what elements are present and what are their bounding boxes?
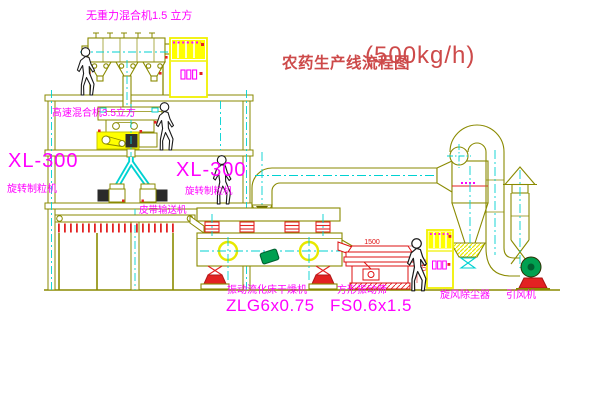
label-granulator-model-left: XL-300 — [8, 151, 79, 171]
spring-mount-right — [309, 266, 337, 289]
induced-draft-fan — [516, 257, 550, 291]
label-dryer-model: ZLG6x0.75 — [226, 297, 315, 314]
granulator-left — [98, 184, 125, 202]
label-screen-name: 方形振动筛 — [337, 286, 387, 296]
process-flow-diagram: 1500 340 — [0, 0, 600, 403]
label-gravity-mixer: 无重力混合机1.5 立方 — [86, 11, 192, 22]
label-cyclone: 旋风除尘器 — [440, 291, 490, 301]
exhaust-stack — [503, 167, 537, 268]
label-fan: 引风机 — [506, 291, 536, 301]
label-granulator-model-right: XL-300 — [176, 160, 247, 180]
diagram-capacity: (500kg/h) — [365, 42, 475, 70]
screen-length-dimension: 1500 — [364, 239, 380, 246]
exhaust-duct — [252, 152, 460, 215]
flex-connectors — [205, 222, 330, 232]
label-granulator-name-left: 旋转制粒机 — [7, 185, 57, 195]
control-cabinet-roof — [170, 38, 207, 97]
fluid-bed-dryer — [197, 208, 354, 289]
y-chute — [117, 157, 148, 186]
control-cabinet-ground — [427, 230, 453, 288]
label-granulator-name-right: 旋转制粒机 — [185, 187, 233, 197]
belt-conveyor — [55, 215, 204, 233]
granulator-right — [140, 184, 167, 202]
label-screen-model: FS0.6x1.5 — [330, 297, 412, 314]
label-high-speed-mixer: 高速混合机3.5立方 — [52, 109, 136, 119]
label-belt-conveyor: 皮带输送机 — [139, 206, 187, 216]
label-dryer-name: 振动流化床干燥机 — [227, 286, 307, 296]
spring-mount-left — [201, 266, 229, 289]
